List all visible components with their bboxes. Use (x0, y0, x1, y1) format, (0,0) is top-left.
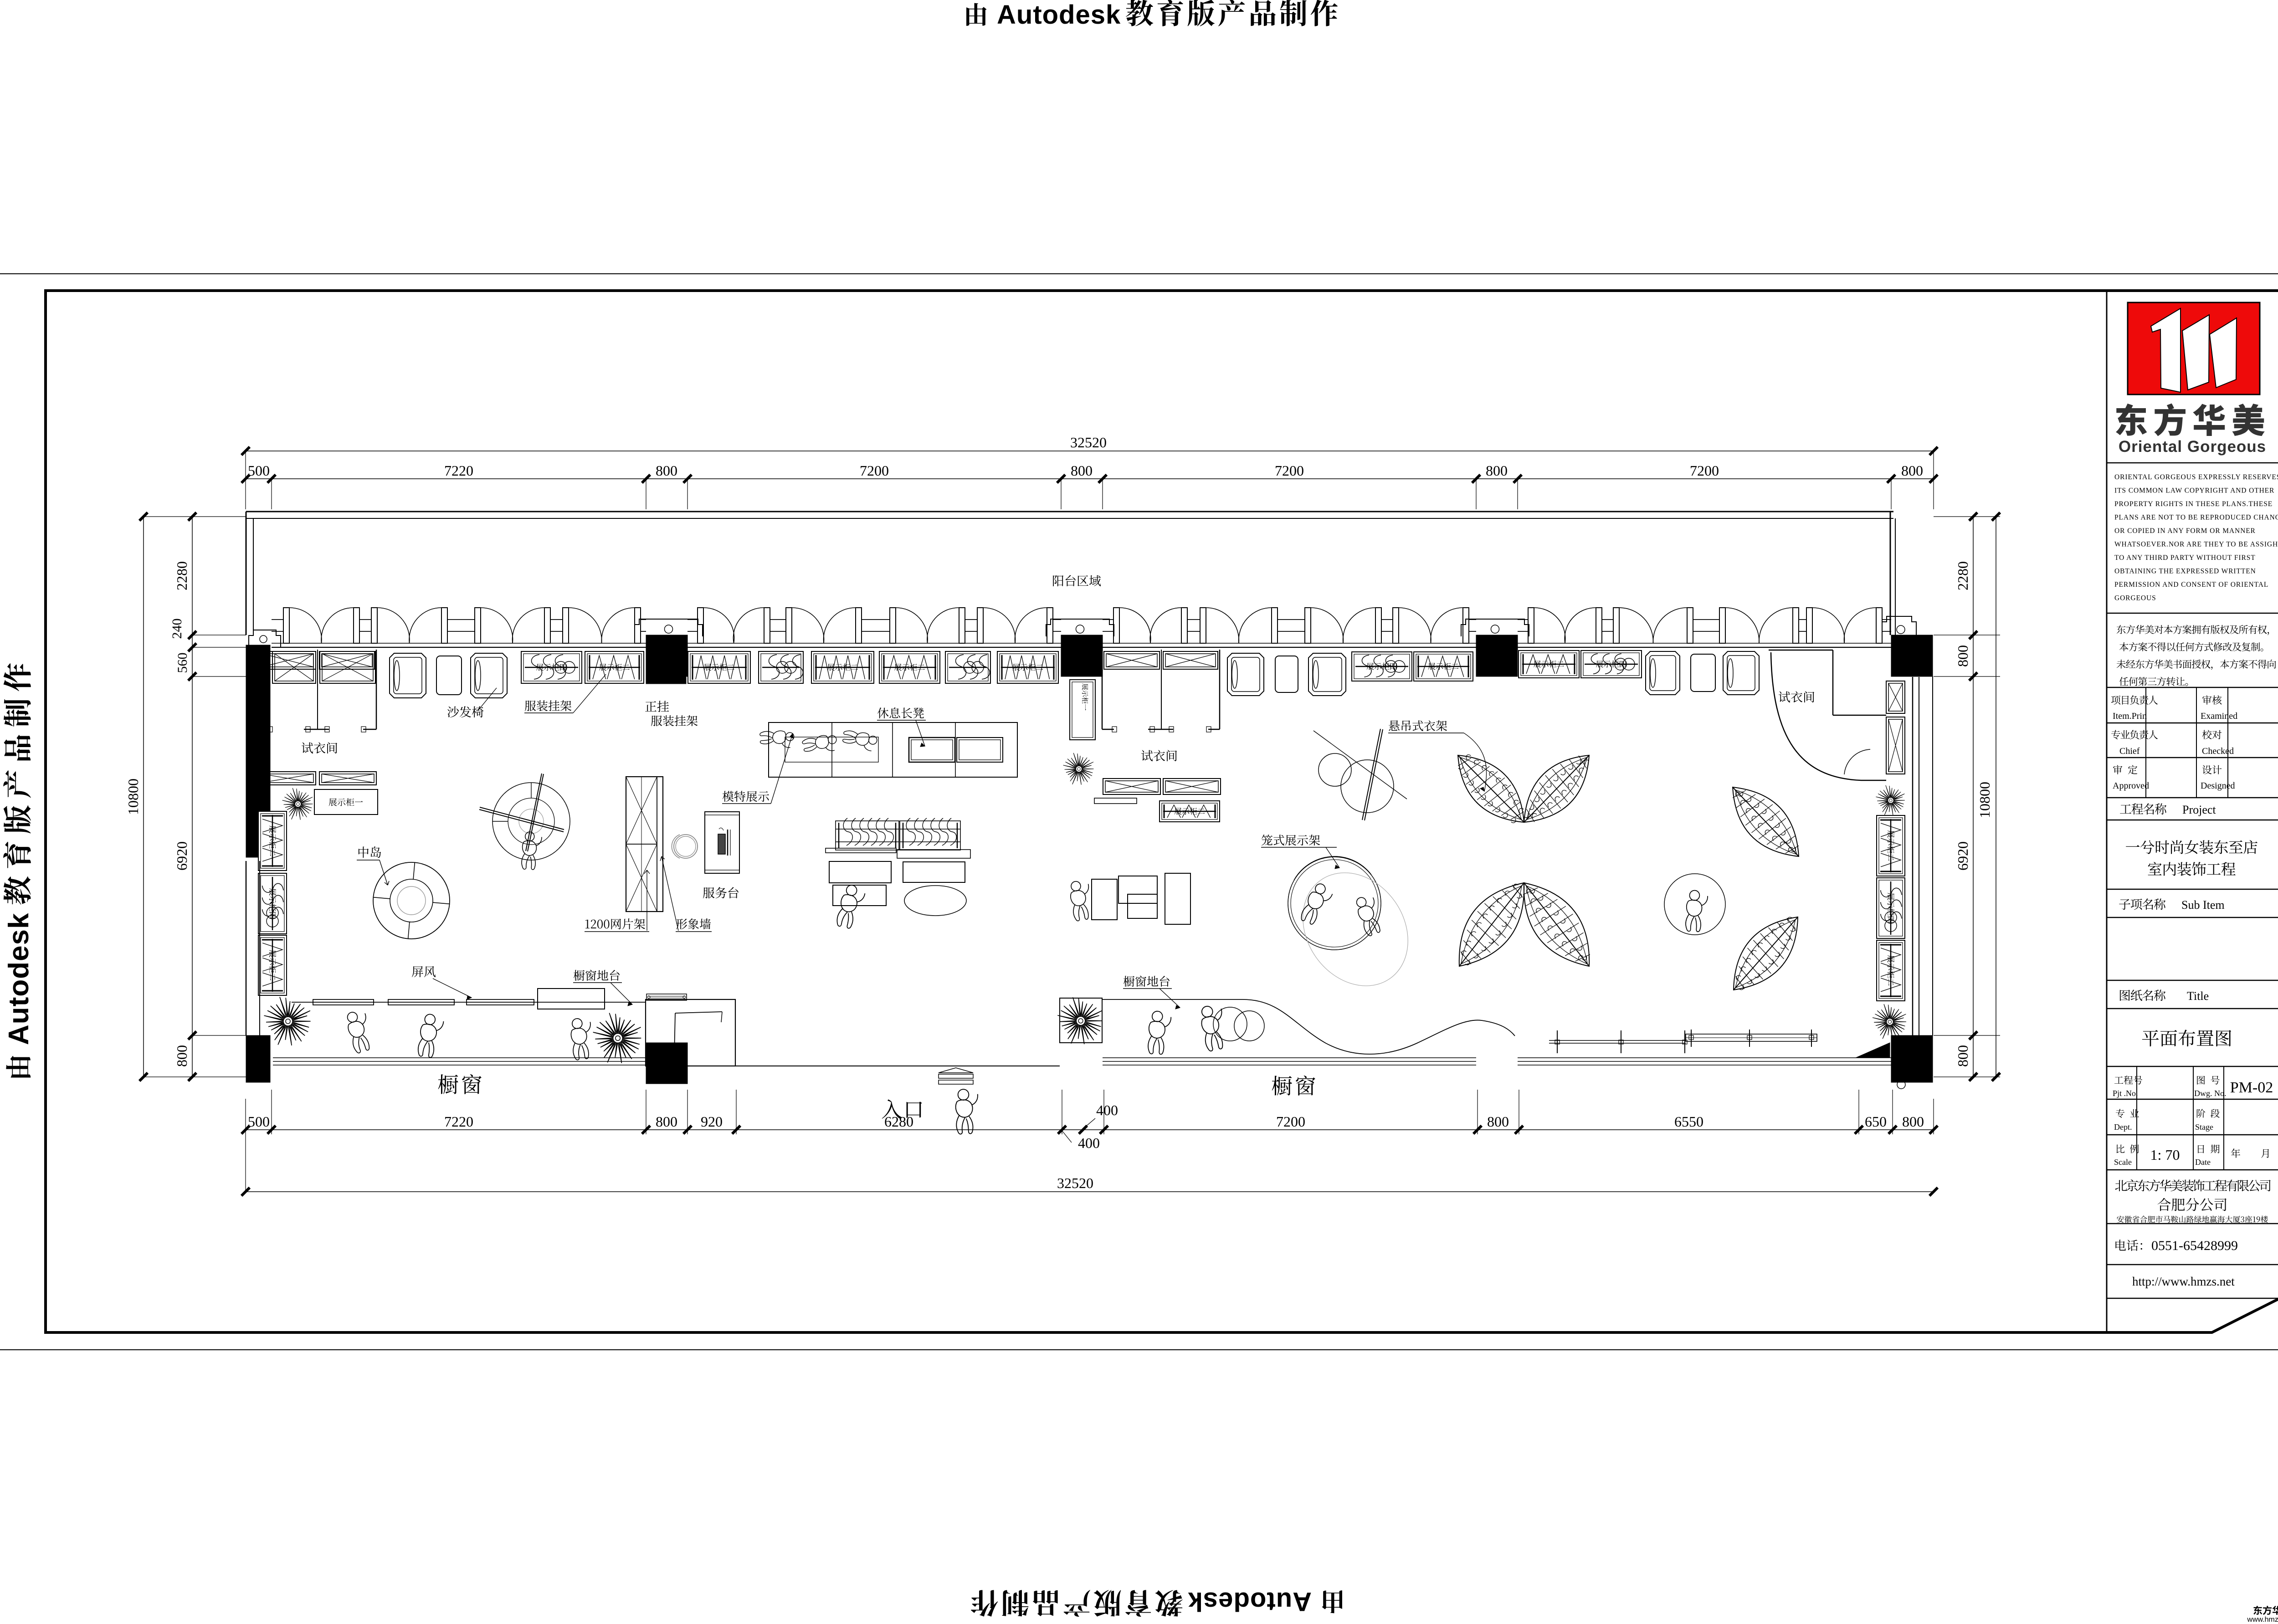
svg-text:10800: 10800 (125, 779, 141, 815)
svg-text:Checked: Checked (2202, 746, 2234, 756)
svg-text:Date: Date (2195, 1158, 2211, 1167)
svg-text:800: 800 (1486, 462, 1508, 479)
svg-text:Dept.: Dept. (2114, 1122, 2132, 1132)
svg-text:800: 800 (1487, 1113, 1509, 1130)
svg-text:Examined: Examined (2201, 711, 2237, 721)
svg-text:Oriental Gorgeous: Oriental Gorgeous (2119, 438, 2266, 456)
svg-text:800: 800 (1955, 645, 1971, 667)
svg-text:6280: 6280 (884, 1113, 913, 1130)
svg-text:PLANS ARE NOT TO BE REPRODUCED: PLANS ARE NOT TO BE REPRODUCED CHANGED (2114, 514, 2278, 522)
svg-text:6920: 6920 (174, 841, 190, 871)
svg-text:650: 650 (1865, 1113, 1887, 1130)
svg-text:Autodesk: Autodesk (3, 913, 35, 1045)
svg-text:1: 70: 1: 70 (2150, 1147, 2180, 1163)
svg-text:800: 800 (1955, 1045, 1971, 1067)
svg-text:800: 800 (656, 1113, 677, 1130)
svg-text:Designed: Designed (2201, 781, 2235, 791)
svg-text:TO ANY THIRD PARTY WITHOUT FIR: TO ANY THIRD PARTY WITHOUT FIRST (2114, 554, 2256, 562)
svg-text:Scale: Scale (2114, 1158, 2132, 1167)
svg-text:PERMISSION AND CONSENT OF ORIE: PERMISSION AND CONSENT OF ORIENTAL (2114, 581, 2268, 589)
svg-text:WHATSOEVER.NOR ARE THEY TO BE: WHATSOEVER.NOR ARE THEY TO BE ASSIGHED (2114, 541, 2278, 548)
svg-text:7200: 7200 (1276, 1113, 1305, 1130)
svg-text:Dwg. No.: Dwg. No. (2194, 1089, 2227, 1098)
svg-text:Title: Title (2187, 989, 2209, 1003)
svg-text:0551-65428999: 0551-65428999 (2151, 1238, 2238, 1253)
svg-text:2280: 2280 (174, 561, 190, 590)
svg-text:Project: Project (2182, 803, 2216, 816)
svg-text:http://www.hmzs.net: http://www.hmzs.net (2132, 1275, 2235, 1288)
svg-text:Autodesk: Autodesk (1188, 1587, 1312, 1616)
svg-text:ORIENTAL GORGEOUS EXPRESSLY RE: ORIENTAL GORGEOUS EXPRESSLY RESERVES (2114, 473, 2278, 481)
svg-text:Stage: Stage (2195, 1122, 2213, 1132)
svg-text:7200: 7200 (1690, 462, 1719, 479)
svg-text:PROPERTY RIGHTS IN THESE PLANS: PROPERTY RIGHTS IN THESE PLANS.THESE (2114, 500, 2273, 508)
svg-text:OBTAINING THE EXPRESSED WRITTE: OBTAINING THE EXPRESSED WRITTEN (2114, 568, 2256, 575)
svg-text:Chief: Chief (2119, 746, 2140, 756)
svg-text:920: 920 (701, 1113, 723, 1130)
svg-text:www.hmzs.net: www.hmzs.net (2247, 1616, 2278, 1624)
svg-text:7220: 7220 (444, 1113, 473, 1130)
svg-text:6550: 6550 (1674, 1113, 1703, 1130)
svg-text:32520: 32520 (1057, 1175, 1093, 1191)
svg-text:500: 500 (248, 462, 270, 479)
svg-text:PM-02: PM-02 (2230, 1079, 2273, 1096)
svg-text:7200: 7200 (1275, 462, 1304, 479)
svg-text:400: 400 (1096, 1102, 1118, 1118)
svg-text:OR COPIED IN ANY FORM OR MANNE: OR COPIED IN ANY FORM OR MANNER (2114, 527, 2256, 535)
svg-text:Autodesk: Autodesk (997, 0, 1121, 30)
svg-text:240: 240 (169, 619, 185, 639)
svg-text:400: 400 (1078, 1135, 1100, 1151)
svg-text:2280: 2280 (1955, 561, 1971, 590)
svg-text:GORGEOUS: GORGEOUS (2114, 594, 2156, 602)
svg-text:Sub Item: Sub Item (2181, 898, 2225, 912)
svg-text:Approved: Approved (2113, 781, 2149, 791)
svg-text:800: 800 (174, 1045, 190, 1067)
svg-text:Item.Prin: Item.Prin (2113, 711, 2147, 721)
svg-text:10800: 10800 (1976, 782, 1993, 818)
svg-text:7200: 7200 (860, 462, 889, 479)
svg-text:Autodesk: Autodesk (2276, 657, 2278, 777)
svg-text:800: 800 (656, 462, 677, 479)
svg-text:6920: 6920 (1955, 841, 1971, 871)
svg-text:800: 800 (1901, 462, 1923, 479)
svg-text:800: 800 (1902, 1113, 1924, 1130)
svg-text:800: 800 (1071, 462, 1093, 479)
svg-text:Pjt .No.: Pjt .No. (2113, 1089, 2138, 1098)
svg-text:32520: 32520 (1070, 434, 1107, 451)
svg-text:ITS COMMON LAW COPYRIGHT AND O: ITS COMMON LAW COPYRIGHT AND OTHER (2114, 487, 2274, 495)
svg-text:7220: 7220 (444, 462, 473, 479)
svg-text:500: 500 (248, 1113, 270, 1130)
svg-text:560: 560 (175, 653, 190, 673)
